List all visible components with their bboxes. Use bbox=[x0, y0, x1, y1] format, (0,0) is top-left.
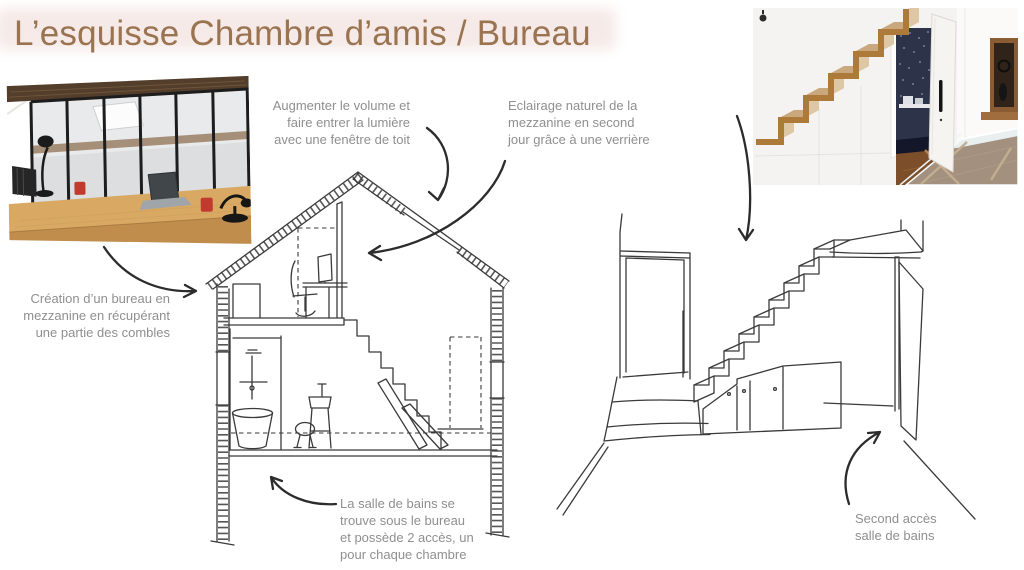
sketch-layer bbox=[0, 0, 1024, 570]
roof bbox=[206, 172, 509, 289]
skylight-projection-dashed bbox=[298, 228, 336, 317]
floors bbox=[224, 318, 497, 456]
arrow-natural-light bbox=[369, 161, 505, 260]
arrow-bathroom bbox=[271, 477, 336, 504]
desk-sketch bbox=[303, 254, 347, 318]
cupboard-handle bbox=[728, 393, 731, 396]
perspective-stairs bbox=[694, 240, 850, 402]
sketch-house-section bbox=[206, 172, 509, 545]
walls bbox=[211, 284, 509, 545]
bathtub bbox=[233, 409, 273, 449]
interior-wall bbox=[337, 202, 342, 318]
shower bbox=[240, 350, 267, 399]
arrow-second-access bbox=[846, 432, 880, 504]
cupboard-handle bbox=[774, 388, 777, 391]
office-chair bbox=[291, 261, 317, 316]
arrow-roof-window bbox=[427, 128, 448, 200]
section-stairs bbox=[345, 320, 441, 449]
left-doorway bbox=[620, 214, 690, 379]
computer-monitor bbox=[318, 254, 332, 283]
under-stair-cupboards bbox=[703, 362, 841, 434]
arrow-mezzanine-office bbox=[104, 247, 196, 297]
door-opening-dashed bbox=[450, 337, 481, 428]
under-stair-storage bbox=[378, 379, 448, 449]
washbasin bbox=[309, 384, 331, 448]
arrow-photo-to-stairs bbox=[737, 116, 753, 240]
wardrobe bbox=[233, 284, 260, 318]
sketch-staircase-perspective bbox=[557, 214, 975, 519]
toilet bbox=[294, 423, 316, 448]
presentation-slide: L’esquisse Chambre d’amis / Bureau bbox=[0, 0, 1024, 570]
bathroom-sketch bbox=[230, 329, 331, 449]
entry-platform-steps bbox=[557, 377, 710, 515]
top-landing bbox=[830, 220, 923, 258]
cupboard-handle bbox=[743, 390, 746, 393]
